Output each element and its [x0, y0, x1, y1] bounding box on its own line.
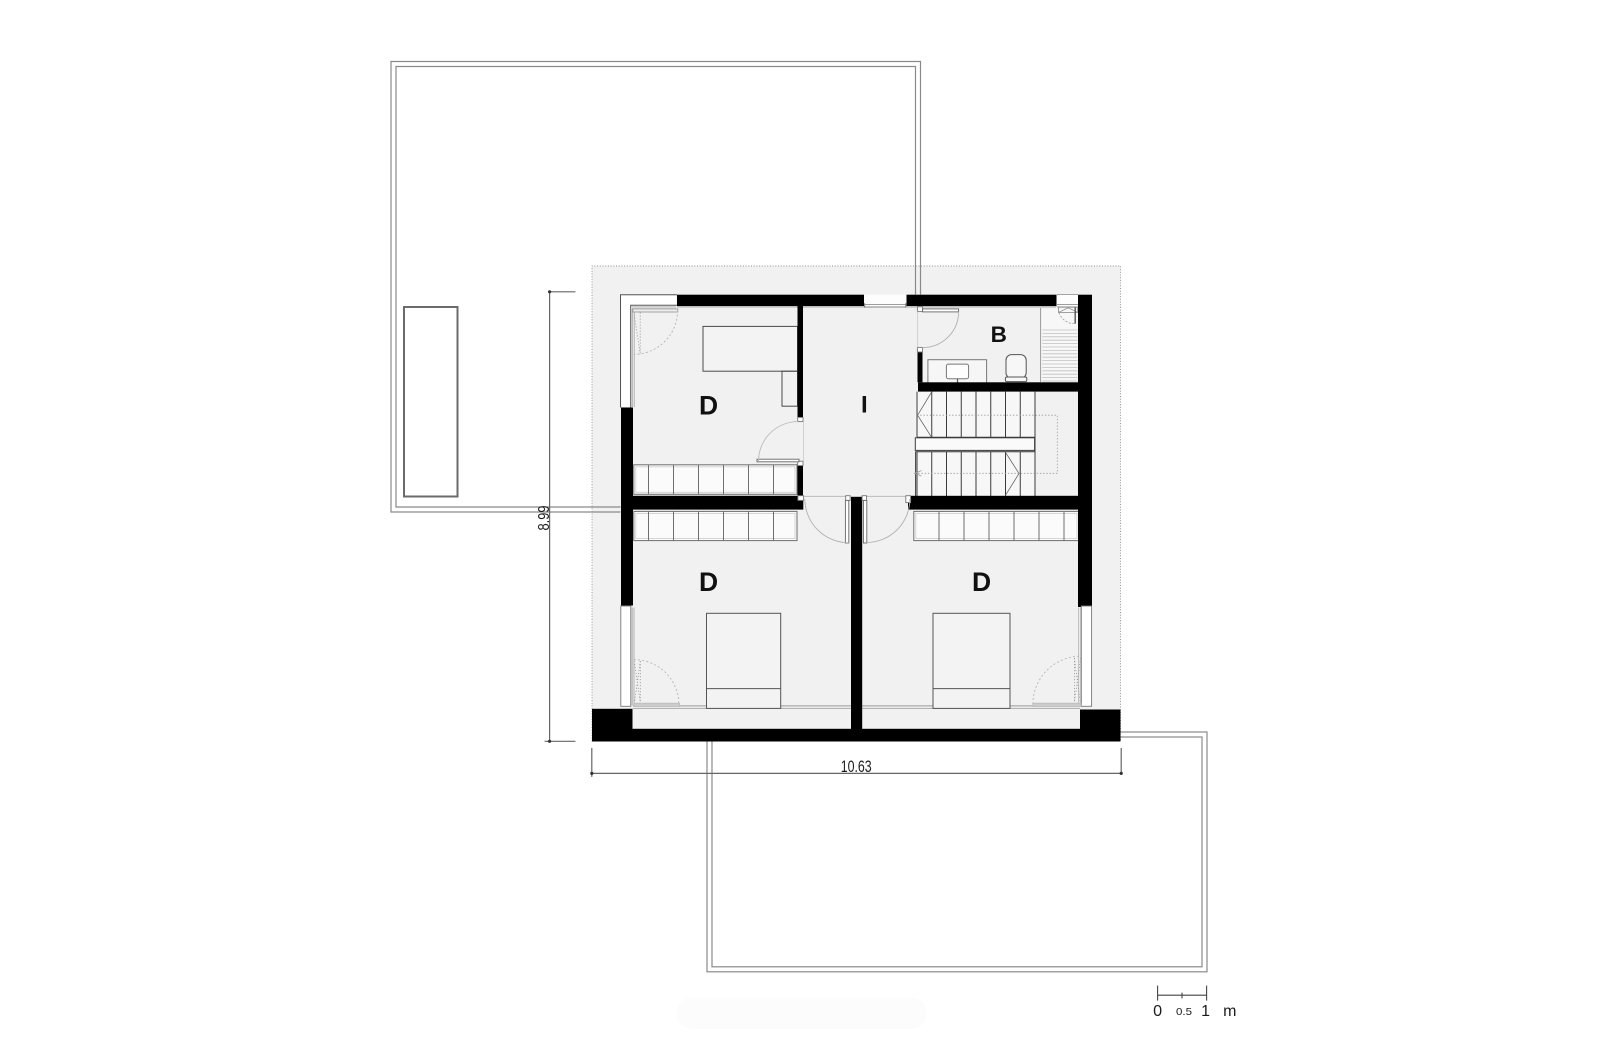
svg-text:B: B	[991, 322, 1007, 347]
svg-text:D: D	[699, 390, 718, 420]
svg-text:10.63: 10.63	[841, 758, 872, 776]
svg-text:8.99: 8.99	[536, 506, 553, 531]
svg-text:D: D	[972, 567, 991, 597]
svg-text:0.5: 0.5	[1176, 1006, 1192, 1018]
svg-text:D: D	[699, 567, 718, 597]
svg-text:1: 1	[1201, 1003, 1210, 1020]
svg-text:m: m	[1223, 1003, 1236, 1020]
svg-text:0: 0	[1153, 1003, 1162, 1020]
svg-text:I: I	[861, 392, 868, 419]
